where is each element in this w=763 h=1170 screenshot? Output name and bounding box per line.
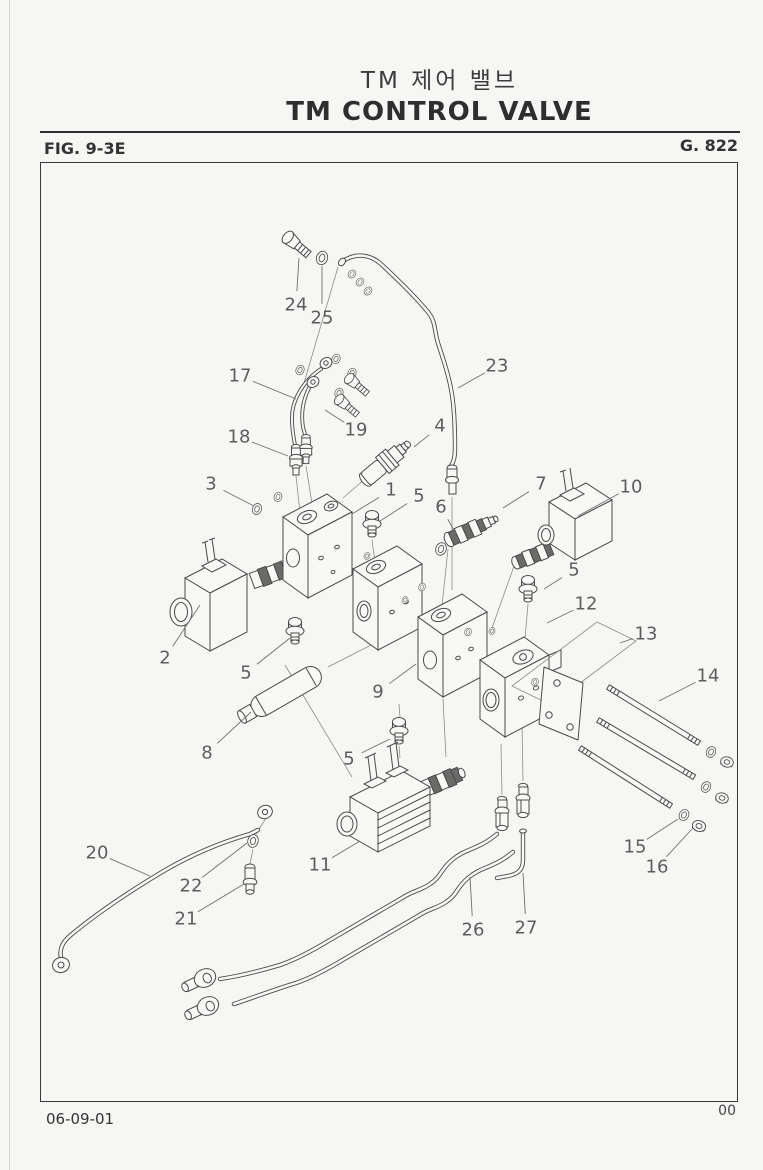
- callout-leader-7: [503, 491, 529, 508]
- callout-label-15: 15: [624, 837, 647, 858]
- callout-leader-18: [252, 442, 288, 456]
- callout-label-16: 16: [646, 857, 669, 878]
- callout-leader-8: [217, 712, 251, 743]
- callout-label-17: 17: [229, 366, 252, 387]
- callout-label-27: 27: [515, 918, 538, 939]
- solenoid-valve-10: [510, 468, 612, 571]
- callout-leader-17: [253, 381, 296, 399]
- footer-date: 06-09-01: [46, 1110, 114, 1128]
- valve-block-1: [283, 494, 352, 598]
- bolt: [332, 392, 361, 419]
- callout-label-8: 8: [201, 743, 212, 764]
- callout-label-5: 5: [240, 663, 251, 684]
- callout-label-19: 19: [345, 420, 368, 441]
- valve-block-9: [353, 546, 422, 650]
- callout-leader-5: [257, 638, 290, 664]
- callout-leader-5: [544, 577, 562, 589]
- plug-5: [286, 618, 304, 645]
- callout-leader-14: [659, 682, 696, 701]
- pipe-20: [51, 803, 275, 975]
- callout-label-18: 18: [228, 427, 251, 448]
- callout-label-5: 5: [343, 749, 354, 770]
- callout-leader-20: [110, 859, 150, 876]
- callout-label-21: 21: [175, 909, 198, 930]
- banjo-bolt: [179, 965, 219, 997]
- catalog-page: TM 제어 밸브 TM CONTROL VALVE FIG. 9-3E G. 8…: [0, 0, 763, 1170]
- callout-label-26: 26: [462, 920, 485, 941]
- callout-leader-13: [620, 639, 633, 643]
- callout-label-11: 11: [309, 855, 332, 876]
- callout-label-22: 22: [180, 876, 203, 897]
- washer-15: [677, 808, 691, 823]
- washer-25: [315, 250, 330, 266]
- callout-leader-3: [223, 490, 254, 506]
- callout-leader-21: [198, 884, 244, 912]
- footer-revision: 00: [718, 1103, 736, 1119]
- callout-label-25: 25: [311, 308, 334, 329]
- callout-label-4: 4: [434, 416, 445, 437]
- callout-label-14: 14: [697, 666, 720, 687]
- cartridge-valve-7: [434, 511, 501, 557]
- washers-nuts-15-16: [677, 745, 734, 833]
- plug-5: [519, 576, 537, 603]
- stud-bolts-14: [579, 685, 701, 808]
- connector-fitting: [495, 796, 509, 830]
- callout-label-1: 1: [385, 480, 396, 501]
- callout-label-7: 7: [535, 474, 546, 495]
- plug-5: [363, 511, 381, 538]
- callout-label-12: 12: [575, 594, 598, 615]
- callout-leader-5: [380, 504, 407, 521]
- callout-leader-19: [325, 410, 344, 422]
- washer-19: [294, 364, 305, 376]
- callout-label-6: 6: [435, 497, 446, 518]
- small-oring: [363, 552, 371, 561]
- nut-16: [691, 819, 707, 833]
- callout-leader-12: [547, 610, 573, 623]
- connector-fitting: [516, 783, 530, 817]
- fitting-21: [243, 864, 257, 894]
- callout-label-13: 13: [635, 624, 658, 645]
- callout-leader-11: [332, 841, 360, 858]
- oring-3: [251, 502, 263, 516]
- callout-label-23: 23: [486, 356, 509, 377]
- solenoid-valve-11: [337, 742, 468, 852]
- small-oring: [488, 627, 496, 636]
- plug-5: [390, 718, 408, 745]
- fitting-6: [446, 465, 459, 494]
- bolt: [342, 371, 371, 398]
- callout-leader-9: [389, 664, 416, 684]
- callout-label-2: 2: [159, 648, 170, 669]
- callout-leader-15: [647, 819, 678, 839]
- callout-label-24: 24: [285, 295, 308, 316]
- banjo-bolt: [182, 993, 222, 1025]
- callout-label-3: 3: [205, 474, 216, 495]
- callout-leader-4: [414, 435, 429, 447]
- callout-label-5: 5: [568, 560, 579, 581]
- callout-leader-24: [297, 258, 299, 291]
- callout-leader-16: [666, 829, 692, 857]
- callout-label-9: 9: [372, 682, 383, 703]
- callout-leader-27: [523, 873, 525, 914]
- callout-label-5: 5: [413, 486, 424, 507]
- exploded-parts-diagram: 2425231719184315710651213251498515162011…: [0, 0, 763, 1170]
- oring-3: [273, 491, 284, 503]
- callout-leader-26: [470, 877, 472, 916]
- callout-leader-23: [458, 373, 485, 388]
- callout-leader-5: [362, 739, 390, 753]
- callout-label-20: 20: [86, 843, 109, 864]
- valve-block-third: [418, 594, 487, 697]
- bolt-24: [280, 229, 313, 260]
- callout-label-10: 10: [620, 477, 643, 498]
